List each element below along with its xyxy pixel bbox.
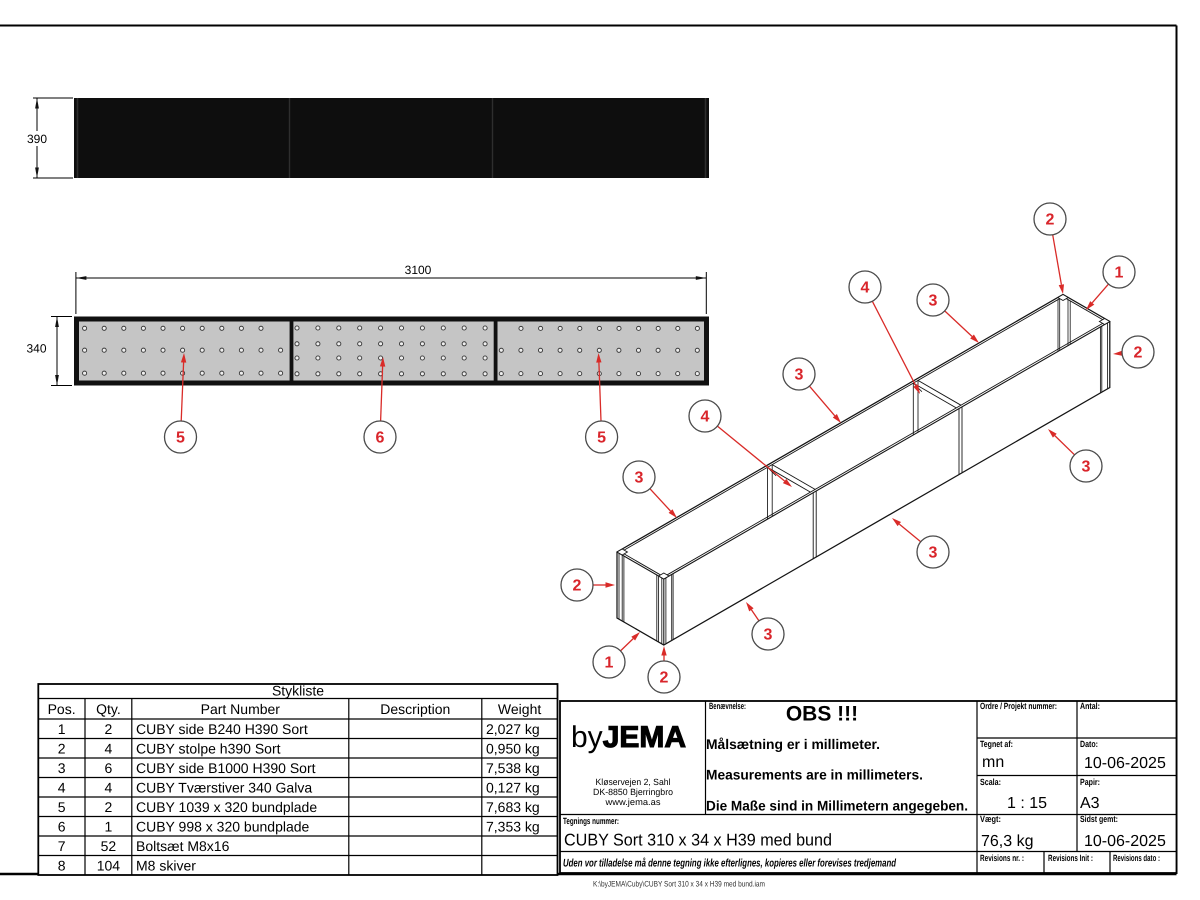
svg-text:Benævnelse:: Benævnelse: xyxy=(709,701,746,711)
svg-text:0,127 kg: 0,127 kg xyxy=(486,780,540,796)
svg-text:3: 3 xyxy=(795,367,804,384)
svg-text:2,027 kg: 2,027 kg xyxy=(486,721,540,737)
svg-text:4: 4 xyxy=(861,280,870,297)
svg-text:byJEMA: byJEMA xyxy=(571,721,686,754)
svg-text:Qty.: Qty. xyxy=(96,701,121,717)
svg-text:Sidst gemt:: Sidst gemt: xyxy=(1080,814,1118,824)
svg-text:www.jema.as: www.jema.as xyxy=(604,797,661,807)
svg-text:3: 3 xyxy=(929,293,938,310)
svg-text:Stykliste: Stykliste xyxy=(272,683,324,699)
svg-text:7,538 kg: 7,538 kg xyxy=(486,760,540,776)
svg-text:10-06-2025: 10-06-2025 xyxy=(1084,755,1166,772)
svg-text:Die Maße sind in Millimetern a: Die Maße sind in Millimetern angegeben. xyxy=(706,798,968,814)
svg-text:Tegnet af:: Tegnet af: xyxy=(980,739,1013,749)
svg-text:4: 4 xyxy=(58,780,66,796)
svg-text:Measurements are in millimeter: Measurements are in millimeters. xyxy=(706,767,923,783)
svg-text:2: 2 xyxy=(58,741,66,757)
svg-text:1 : 15: 1 : 15 xyxy=(1007,795,1047,812)
svg-text:3: 3 xyxy=(929,545,938,562)
svg-text:OBS !!!: OBS !!! xyxy=(786,703,858,726)
svg-text:mn: mn xyxy=(982,754,1004,771)
svg-text:2: 2 xyxy=(105,799,113,815)
svg-text:K:\byJEMA\Cuby\CUBY Sort 310 x: K:\byJEMA\Cuby\CUBY Sort 310 x 34 x H39 … xyxy=(593,880,765,889)
svg-text:CUBY side B240 H390 Sort: CUBY side B240 H390 Sort xyxy=(136,721,308,737)
svg-text:A3: A3 xyxy=(1080,795,1100,812)
svg-text:CUBY stolpe h390 Sort: CUBY stolpe h390 Sort xyxy=(136,741,281,757)
svg-text:CUBY side B1000 H390 Sort: CUBY side B1000 H390 Sort xyxy=(136,760,316,776)
svg-text:5: 5 xyxy=(176,430,185,447)
svg-text:1: 1 xyxy=(1115,265,1124,282)
svg-text:Revisions nr. :: Revisions nr. : xyxy=(980,853,1024,863)
svg-text:0,950 kg: 0,950 kg xyxy=(486,741,540,757)
svg-text:DK-8850 Bjerringbro: DK-8850 Bjerringbro xyxy=(593,787,673,797)
svg-text:3: 3 xyxy=(635,470,644,487)
svg-text:Scala:: Scala: xyxy=(980,777,1001,787)
svg-text:Vægt:: Vægt: xyxy=(980,814,1001,824)
svg-text:6: 6 xyxy=(376,430,385,447)
svg-text:5: 5 xyxy=(597,430,606,447)
svg-text:Målsætning er i millimeter.: Målsætning er i millimeter. xyxy=(706,736,880,752)
svg-text:CUBY Tværstiver 340 Galva: CUBY Tværstiver 340 Galva xyxy=(136,780,312,796)
svg-text:76,3 kg: 76,3 kg xyxy=(981,833,1033,850)
svg-text:Papir:: Papir: xyxy=(1080,777,1100,787)
svg-text:6: 6 xyxy=(105,760,113,776)
svg-text:3100: 3100 xyxy=(405,263,432,277)
svg-text:Antal:: Antal: xyxy=(1080,701,1100,711)
svg-text:Kløservejen 2, Sahl: Kløservejen 2, Sahl xyxy=(596,777,671,787)
svg-text:Revisions Init :: Revisions Init : xyxy=(1048,853,1093,863)
svg-text:4: 4 xyxy=(701,409,710,426)
svg-text:CUBY 1039 x 320 bundplade: CUBY 1039 x 320 bundplade xyxy=(136,799,317,815)
svg-text:2: 2 xyxy=(105,721,113,737)
svg-text:8: 8 xyxy=(58,858,66,874)
svg-text:390: 390 xyxy=(27,132,47,146)
svg-text:2: 2 xyxy=(573,578,582,595)
svg-text:CUBY Sort 310 x 34 x H39 med b: CUBY Sort 310 x 34 x H39 med bund xyxy=(564,831,832,850)
svg-text:1: 1 xyxy=(58,721,66,737)
svg-text:Part Number: Part Number xyxy=(201,701,281,717)
svg-text:5: 5 xyxy=(58,799,66,815)
svg-text:Ordre / Projekt nummer:: Ordre / Projekt nummer: xyxy=(980,701,1057,711)
svg-text:7,683 kg: 7,683 kg xyxy=(486,799,540,815)
svg-text:7: 7 xyxy=(58,838,66,854)
svg-text:2: 2 xyxy=(660,670,669,687)
svg-text:7,353 kg: 7,353 kg xyxy=(486,819,540,835)
svg-text:Dato:: Dato: xyxy=(1080,739,1098,749)
svg-text:4: 4 xyxy=(105,780,113,796)
svg-text:CUBY 998 x 320 bundplade: CUBY 998 x 320 bundplade xyxy=(136,819,310,835)
svg-text:3: 3 xyxy=(58,760,66,776)
svg-text:52: 52 xyxy=(101,838,117,854)
svg-text:1: 1 xyxy=(605,655,614,672)
svg-text:340: 340 xyxy=(26,342,46,356)
svg-text:M8 skiver: M8 skiver xyxy=(136,858,196,874)
svg-text:3: 3 xyxy=(764,627,773,644)
svg-text:Uden vor tilladelse må denne t: Uden vor tilladelse må denne tegning ikk… xyxy=(563,857,896,870)
svg-text:2: 2 xyxy=(1134,345,1143,362)
svg-text:4: 4 xyxy=(105,741,113,757)
svg-text:Boltsæt M8x16: Boltsæt M8x16 xyxy=(136,838,230,854)
svg-text:Description: Description xyxy=(380,701,450,717)
svg-text:3: 3 xyxy=(1082,459,1091,476)
svg-text:2: 2 xyxy=(1046,212,1055,229)
svg-text:104: 104 xyxy=(97,858,121,874)
svg-text:Revisions dato :: Revisions dato : xyxy=(1113,853,1160,863)
svg-text:10-06-2025: 10-06-2025 xyxy=(1084,833,1166,850)
svg-text:Pos.: Pos. xyxy=(48,701,76,717)
svg-text:6: 6 xyxy=(58,819,66,835)
svg-text:1: 1 xyxy=(105,819,113,835)
svg-text:Weight: Weight xyxy=(498,701,541,717)
svg-text:Tegnings nummer:: Tegnings nummer: xyxy=(563,816,619,826)
